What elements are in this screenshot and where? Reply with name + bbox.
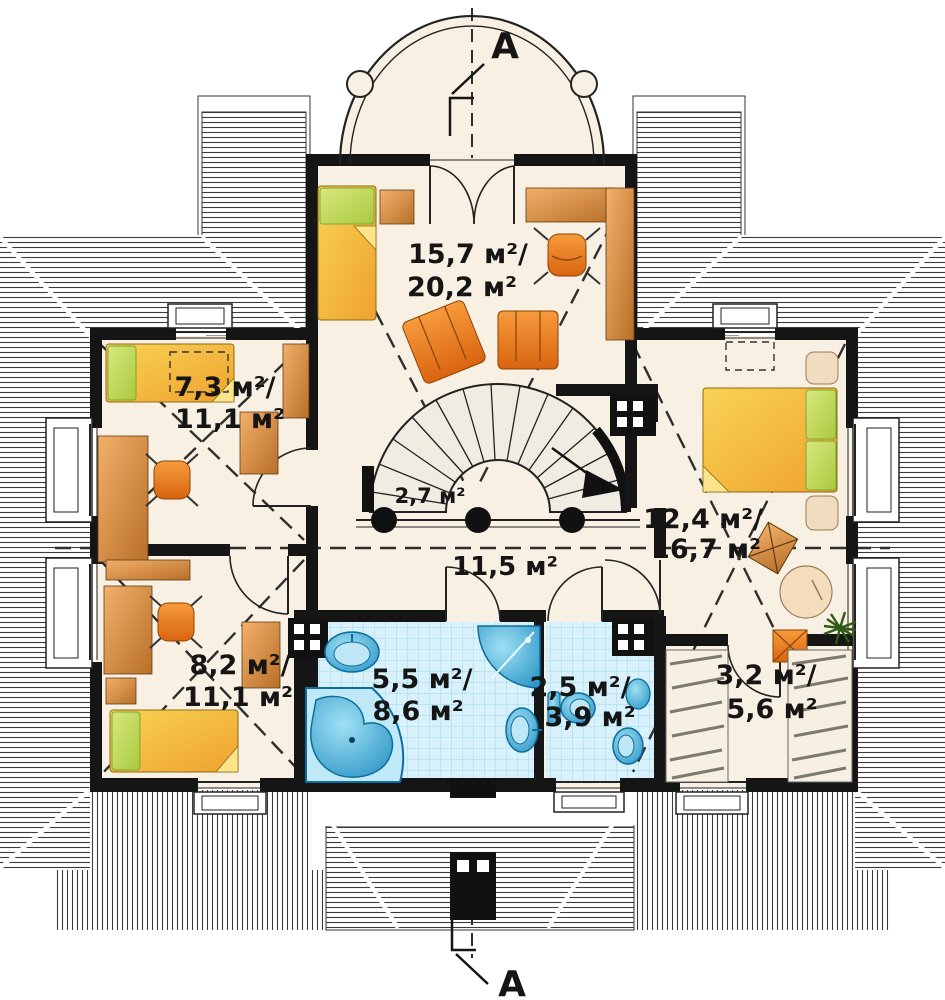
label-left-lower-1: 8,2 м²/	[190, 650, 291, 681]
balcony-column-right	[571, 71, 597, 97]
label-left-upper-2: 11,1 м²	[175, 404, 285, 435]
roof-dormer-top-right	[637, 112, 741, 336]
wardrobe-left-upper	[283, 344, 309, 418]
vent-bathroom	[288, 618, 328, 658]
column	[371, 507, 397, 533]
office-chair-left-lower	[150, 596, 202, 648]
bed-single-left-lower	[110, 710, 238, 772]
label-wc-2: 3,9 м²	[544, 702, 635, 733]
label-wardrobe-2: 5,6 м²	[726, 694, 817, 725]
label-wc-1: 2,5 м²/	[530, 672, 631, 703]
column	[559, 507, 585, 533]
window-top-left	[168, 304, 232, 338]
label-bathroom-1: 5,5 м²/	[372, 664, 473, 695]
label-bedroom-top-1: 15,7 м²/	[408, 239, 528, 270]
window-bay-right-1	[848, 418, 899, 522]
label-bathroom-2: 8,6 м²	[372, 696, 463, 727]
label-left-lower-2: 11,1 м²	[183, 682, 293, 713]
section-letter-top: A	[491, 26, 519, 67]
nightstand-2	[806, 496, 838, 530]
bed-double-right	[703, 388, 837, 492]
column	[465, 507, 491, 533]
floor-plan-page: 15,7 м²/ 20,2 м² 7,3 м²/ 11,1 м² 2,7 м² …	[0, 0, 945, 1000]
office-chair-left-upper	[146, 454, 198, 506]
window-bay-right-2	[848, 558, 899, 668]
label-hall: 11,5 м²	[452, 552, 558, 582]
window-bay-left-2	[46, 558, 97, 668]
label-left-upper-1: 7,3 м²/	[175, 372, 276, 403]
shelf-top-room	[380, 190, 414, 224]
nightstand-1	[806, 352, 838, 384]
shelf-left-lower	[106, 560, 190, 580]
section-letter-bottom: A	[498, 964, 526, 1000]
label-stairs: 2,7 м²	[395, 484, 466, 508]
bidet	[613, 728, 643, 764]
vent-wc	[612, 618, 654, 656]
roof-dormer-top-left	[202, 112, 306, 336]
label-bedroom-right-1: 12,4 м²/	[643, 504, 763, 535]
label-bedroom-right-2: 16,7 м²	[651, 534, 761, 565]
armchair-2	[498, 311, 558, 369]
desk-left-upper	[98, 436, 148, 562]
bed-single-top	[318, 186, 376, 320]
drawer-left-lower	[106, 678, 136, 704]
label-wardrobe-1: 3,2 м²/	[716, 660, 817, 691]
desk-left-lower	[104, 586, 152, 674]
label-bedroom-top-2: 20,2 м²	[407, 272, 517, 303]
round-table-right	[780, 566, 832, 618]
stair-wall-stub	[362, 466, 374, 512]
window-bay-left-1	[46, 418, 97, 522]
floor-plan-drawing: 15,7 м²/ 20,2 м² 7,3 м²/ 11,1 м² 2,7 м² …	[0, 0, 945, 1000]
balcony-column-left	[347, 71, 373, 97]
vent-stairs	[610, 394, 656, 436]
